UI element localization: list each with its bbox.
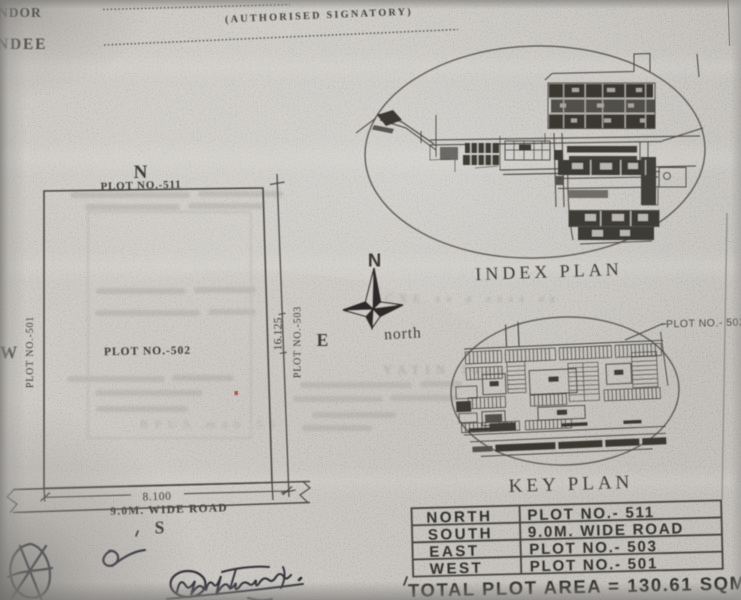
svg-text:SOUTH: SOUTH [428, 525, 494, 544]
svg-text:E: E [317, 330, 329, 350]
svg-text:PLOT NO.-511: PLOT NO.-511 [100, 179, 181, 193]
svg-text:PLOT NO.-503: PLOT NO.-503 [293, 306, 304, 378]
svg-text:north: north [384, 324, 423, 343]
svg-text:EAST: EAST [429, 543, 480, 561]
svg-text:PLOT NO.- 502: PLOT NO.- 502 [666, 316, 741, 330]
svg-text:WEST: WEST [430, 560, 484, 578]
svg-text:PLOT NO.- 501: PLOT NO.- 501 [529, 555, 658, 575]
svg-text:PLOT NO.-502: PLOT NO.-502 [104, 345, 191, 359]
svg-text:PLOT NO.-501: PLOT NO.-501 [25, 316, 36, 388]
svg-text:KEY PLAN: KEY PLAN [508, 472, 633, 497]
svg-text:NORTH: NORTH [426, 508, 492, 527]
svg-text:N: N [368, 250, 381, 271]
